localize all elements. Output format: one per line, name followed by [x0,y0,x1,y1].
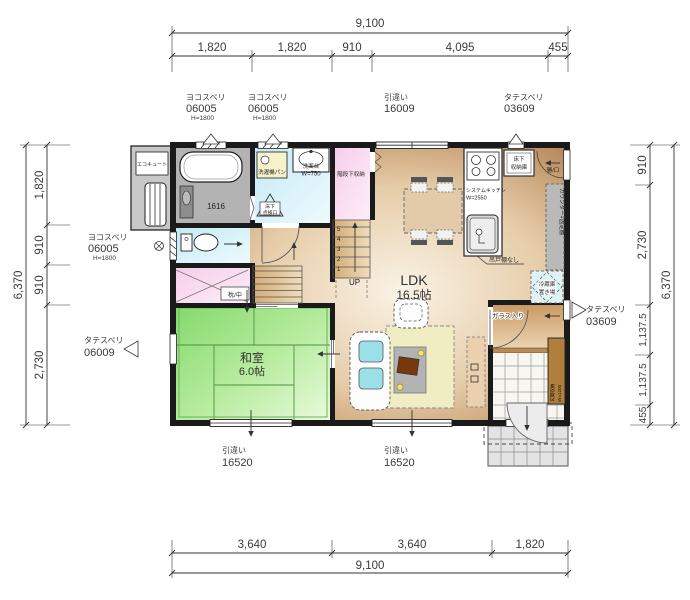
dim-right-total: 6,370 [661,271,673,300]
label-left-win1: ヨコスベリ 06005 H=1800 [88,233,127,262]
washroom-door-gap [262,223,299,228]
dim-seg: 1,137.5 [638,313,649,347]
toilet-fixtures [155,234,219,251]
window-height: H=1800 [191,115,214,122]
dim-seg: 455 [548,42,567,54]
inspection-hatch-label2: 点検口 [263,209,278,216]
dim-seg: 2,730 [34,351,46,380]
dining-table [404,189,462,233]
dim-seg: 455 [638,406,649,423]
ecocute-label: エコキュート [137,162,167,168]
window-type: ヨコスベリ [88,233,127,242]
dim-seg: 1,820 [278,42,307,54]
kitchen-width-label: W=2550 [466,196,487,202]
window-code: 16520 [384,457,415,469]
wall-left [170,142,176,426]
vanity-label: 洗面台 [303,162,320,170]
ldk-area: 16.5帖 [396,287,431,302]
window-type: 引違い [384,92,408,102]
window-height: H=1800 [93,255,116,262]
dim-top-total: 9,100 [356,18,385,30]
stairs-lower-floor [253,266,302,303]
wall-washroom-stairs [330,142,335,282]
sofa-cushion [359,341,383,362]
storage-door-gap [370,152,375,172]
floor-plan-canvas: 枕/中 [0,0,690,600]
window-code: 03609 [504,103,535,115]
window-type: タテスベリ [504,93,543,102]
dim-seg: 910 [342,42,361,54]
window-left-tatesuberi [124,334,177,364]
washitsu-name: 和室 [240,350,264,365]
window-code: 16009 [384,103,415,115]
floor-storage-label2: 収納庫 [511,163,528,171]
bath-size-label: 1616 [207,202,225,211]
wall-toilet-bottom [170,263,255,268]
window-type: タテスベリ [84,336,123,345]
dim-seg: 4,095 [446,42,475,54]
sofa-cushion [359,368,383,389]
dim-seg: 1,820 [34,171,46,200]
window-code: 06005 [88,243,119,255]
glass-door-label: ガラス入り [492,311,524,320]
window-left-yokosuberi [170,232,177,260]
armchair [394,299,428,328]
dim-seg: 910 [34,275,46,294]
dining-chair [411,230,427,245]
tv-board [467,337,485,407]
counter-shelf-label: カウンター+固定棚 [558,188,566,236]
window-code: 16520 [222,457,253,469]
label-right-win1: タテスベリ 03609 [586,305,625,328]
dim-seg: 910 [637,155,649,174]
entrance-storage-label: 玄関収納 [549,383,556,402]
dim-bottom-total: 9,100 [356,560,385,572]
dim-right: 910 2,730 1,137.5 1,137.5 455 6,370 [630,142,680,428]
toilet-bowl [194,234,218,251]
window-type: ヨコスベリ [186,93,225,102]
washitsu-area: 6.0帖 [239,365,265,378]
label-bottom-win2: 引違い 16520 [384,445,415,469]
casement-indicator-icon [572,302,586,318]
entrance-storage-width: W=1200 [557,384,562,402]
dim-seg: 2,730 [637,231,649,260]
window-code: 06005 [248,103,279,115]
label-bottom-win1: 引違い 16520 [222,445,253,469]
fridge-label1: 冷蔵庫 [539,280,556,288]
floor-storage-box [504,150,534,176]
fridge-label2: 置き場 [539,288,556,296]
casement-indicator-icon [203,134,219,144]
fridge-space: 冷蔵庫 置き場 [531,271,563,303]
kitchen-label: システムキッチン [466,188,506,194]
sofa [350,332,390,410]
dim-left: 6,370 1,820 910 910 2,730 [13,142,70,428]
window-top-tatesuberi [508,134,524,149]
dim-top: 9,100 1,820 1,820 910 4,095 455 [169,18,571,72]
dim-bottom: 3,640 3,640 1,820 9,100 [169,539,571,578]
stairs-up-label: UP [349,278,360,287]
dim-seg: 1,820 [516,539,545,551]
dim-seg: 910 [34,235,46,254]
wall-hall-top [170,223,335,228]
floor-cushion [418,350,424,356]
casement-indicator-icon [509,134,523,144]
label-top-win3: 引違い 16009 [384,92,415,115]
window-type: タテスベリ [586,305,625,314]
ecocute-tank [145,183,166,226]
window-top-yokosuberi-1 [196,134,226,149]
window-height: H=1800 [253,115,276,122]
no-cupboard-label: 吊戸棚なし [489,256,519,264]
coffee-table [397,357,419,376]
back-door-label: 勝/口 [547,166,560,174]
washer-pan-label: 洗濯機パン [258,168,286,176]
vanity-width-label: W=750 [301,172,321,178]
floor-cushion [397,384,403,390]
label-top-win2: ヨコスベリ 06005 H=1800 [248,93,287,122]
inspection-hatch-label1: 床下 [265,203,275,210]
window-top-yokosuberi-2 [258,134,288,149]
dim-seg: 3,640 [238,539,267,551]
closet-shelf-label: 枕/中 [228,291,242,299]
window-code: 06005 [186,103,217,115]
dim-seg: 1,137.5 [638,363,649,397]
dim-seg: 1,820 [198,42,227,54]
dim-left-total: 6,370 [13,271,25,300]
dining-chair [437,230,453,245]
window-code: 03609 [586,316,617,328]
wall-closet-right [250,263,255,308]
dining-chair [437,177,453,192]
toilet-tank [181,234,192,251]
wall-washitsu-top [170,303,335,308]
dim-seg: 3,640 [398,539,427,551]
stair-storage-floor [333,148,370,220]
ldk-name: LDK [400,272,428,288]
window-type: ヨコスベリ [248,93,287,102]
washitsu-fusuma-gap [256,303,298,308]
floor-storage-label1: 床下 [513,155,525,163]
stair-storage-label: 階段下収納 [337,170,365,178]
label-left-win2: タテスベリ 06009 [84,336,123,359]
window-top-hikichigai [376,142,448,149]
casement-indicator-icon [124,341,138,357]
window-type: 引違い [384,445,408,455]
window-code: 06009 [84,347,115,359]
dining-chair [411,177,427,192]
label-top-win1: ヨコスベリ 06005 H=1800 [186,93,225,122]
window-type: 引違い [222,445,246,455]
casement-indicator-icon [265,134,281,144]
floor-plan-page: 枕/中 [0,0,690,600]
label-top-win4: タテスベリ 03609 [504,93,543,115]
stove [467,152,499,180]
